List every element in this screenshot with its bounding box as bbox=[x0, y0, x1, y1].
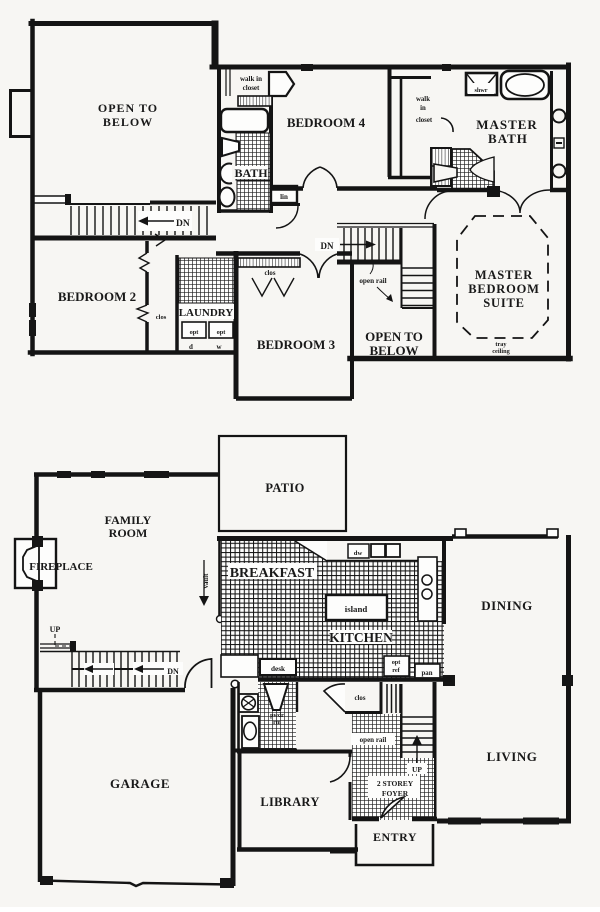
svg-text:LAUNDRY: LAUNDRY bbox=[179, 307, 234, 319]
svg-text:walk: walk bbox=[416, 96, 430, 103]
svg-text:pwdr: pwdr bbox=[270, 713, 284, 719]
svg-text:DN: DN bbox=[167, 667, 179, 676]
svg-text:island: island bbox=[345, 604, 368, 614]
svg-text:clos: clos bbox=[156, 314, 167, 321]
svg-text:dw: dw bbox=[354, 550, 363, 557]
svg-text:d: d bbox=[189, 343, 193, 351]
svg-text:MASTER: MASTER bbox=[476, 117, 538, 132]
svg-text:PATIO: PATIO bbox=[265, 481, 304, 495]
svg-text:BREAKFAST: BREAKFAST bbox=[230, 566, 315, 581]
svg-text:BEDROOM: BEDROOM bbox=[468, 282, 540, 296]
svg-text:OPEN TO: OPEN TO bbox=[98, 101, 158, 115]
svg-text:BEDROOM 2: BEDROOM 2 bbox=[58, 289, 136, 304]
svg-text:tray: tray bbox=[495, 341, 507, 348]
svg-text:BATH: BATH bbox=[488, 131, 528, 146]
svg-text:opt: opt bbox=[190, 329, 200, 336]
svg-text:pan: pan bbox=[422, 670, 433, 677]
svg-text:SUITE: SUITE bbox=[483, 296, 525, 310]
svg-text:2 STOREY: 2 STOREY bbox=[377, 779, 414, 788]
svg-text:rm: rm bbox=[273, 720, 281, 726]
svg-text:OPEN TO: OPEN TO bbox=[365, 329, 423, 344]
svg-text:opt: opt bbox=[392, 659, 402, 666]
svg-text:ref: ref bbox=[392, 667, 400, 674]
svg-text:open rail: open rail bbox=[359, 277, 386, 285]
svg-text:BEDROOM 4: BEDROOM 4 bbox=[287, 115, 366, 130]
svg-text:FIREPLACE: FIREPLACE bbox=[29, 561, 93, 573]
svg-text:clos: clos bbox=[355, 695, 366, 702]
svg-text:BELOW: BELOW bbox=[369, 343, 418, 358]
svg-text:lin: lin bbox=[280, 193, 288, 201]
svg-text:in: in bbox=[420, 105, 426, 112]
svg-text:FAMILY: FAMILY bbox=[105, 513, 152, 527]
svg-text:KITCHEN: KITCHEN bbox=[329, 630, 393, 645]
svg-text:LIBRARY: LIBRARY bbox=[260, 795, 319, 809]
svg-text:desk: desk bbox=[271, 665, 285, 673]
svg-text:GARAGE: GARAGE bbox=[110, 776, 170, 791]
svg-text:closet: closet bbox=[243, 84, 260, 92]
svg-text:DN: DN bbox=[176, 219, 190, 229]
svg-text:BATH: BATH bbox=[234, 166, 268, 180]
svg-text:ENTRY: ENTRY bbox=[373, 830, 417, 844]
svg-text:LIVING: LIVING bbox=[487, 749, 538, 764]
svg-text:DN: DN bbox=[321, 241, 334, 251]
svg-text:opt: opt bbox=[217, 329, 227, 336]
svg-text:UP: UP bbox=[412, 765, 422, 774]
svg-text:shwr: shwr bbox=[474, 87, 487, 94]
svg-text:open rail: open rail bbox=[360, 736, 387, 744]
svg-text:closet: closet bbox=[416, 117, 433, 124]
svg-text:clos: clos bbox=[265, 270, 276, 277]
svg-text:BELOW: BELOW bbox=[103, 115, 153, 129]
svg-text:BEDROOM 3: BEDROOM 3 bbox=[257, 337, 336, 352]
svg-text:ROOM: ROOM bbox=[109, 526, 148, 540]
svg-text:ceiling: ceiling bbox=[492, 348, 510, 355]
svg-text:UP: UP bbox=[50, 625, 61, 634]
svg-text:MASTER: MASTER bbox=[475, 268, 533, 282]
svg-text:walk in: walk in bbox=[240, 75, 262, 83]
svg-text:DINING: DINING bbox=[481, 598, 532, 613]
